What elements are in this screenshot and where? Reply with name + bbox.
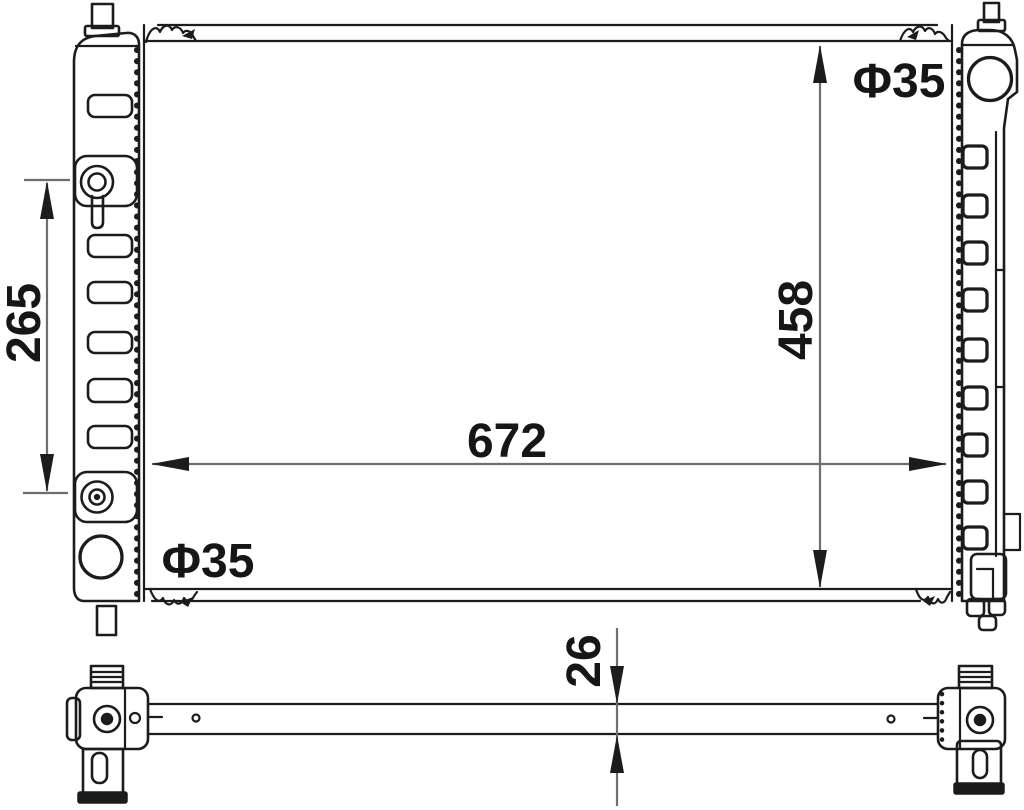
outlet-pipe <box>80 536 122 578</box>
dimension-port-spacing-265: 265 <box>0 180 70 493</box>
right-bottom-bracket <box>971 554 1006 599</box>
right-tank-mounting-slots <box>963 146 987 549</box>
arrowhead-up <box>40 181 54 219</box>
dimension-core-width-672: 672 <box>151 415 947 471</box>
upper-port-fitting <box>75 156 137 228</box>
left-lower-bracket <box>78 749 127 803</box>
dimension-label-265: 265 <box>0 283 51 363</box>
filler-neck <box>92 4 113 28</box>
left-tank <box>74 4 139 635</box>
arrowhead-down <box>610 666 624 704</box>
arrowhead-left <box>151 457 189 471</box>
dimension-core-height-458: 458 <box>770 45 827 588</box>
arrowhead-up <box>813 45 827 83</box>
right-drain-plug <box>967 599 1005 630</box>
arrowhead-down <box>813 550 827 588</box>
right-tank <box>959 3 1020 630</box>
radiator-core <box>144 25 952 607</box>
arrowhead-up <box>610 735 624 773</box>
label-inlet-diameter: Φ35 <box>853 55 946 108</box>
dimension-label-458: 458 <box>770 280 823 360</box>
bottom-peg <box>97 606 116 635</box>
inlet-pipe <box>969 58 1012 101</box>
left-tank-mounting-slots <box>88 95 132 448</box>
bottom-view-right-end <box>888 666 1006 794</box>
crimp-break-mark-top-left <box>146 26 196 42</box>
right-side-tab <box>1004 514 1020 550</box>
crimp-break-mark-bottom-right <box>916 589 950 606</box>
lower-port-fitting <box>75 472 137 522</box>
arrowhead-down <box>40 454 54 492</box>
dimension-label-26: 26 <box>558 634 611 687</box>
label-outlet-diameter: Φ35 <box>162 535 255 588</box>
dimension-label-672: 672 <box>467 415 547 468</box>
radiator-bottom-view: 26 <box>67 628 1005 806</box>
crimp-break-mark-top-right <box>900 27 949 41</box>
arrowhead-right <box>909 457 947 471</box>
dimension-core-thickness-26: 26 <box>558 628 624 806</box>
radiator-technical-drawing: 265 458 672 Φ35 Φ35 <box>0 0 1024 810</box>
crimp-break-mark-bottom-left <box>150 589 197 607</box>
